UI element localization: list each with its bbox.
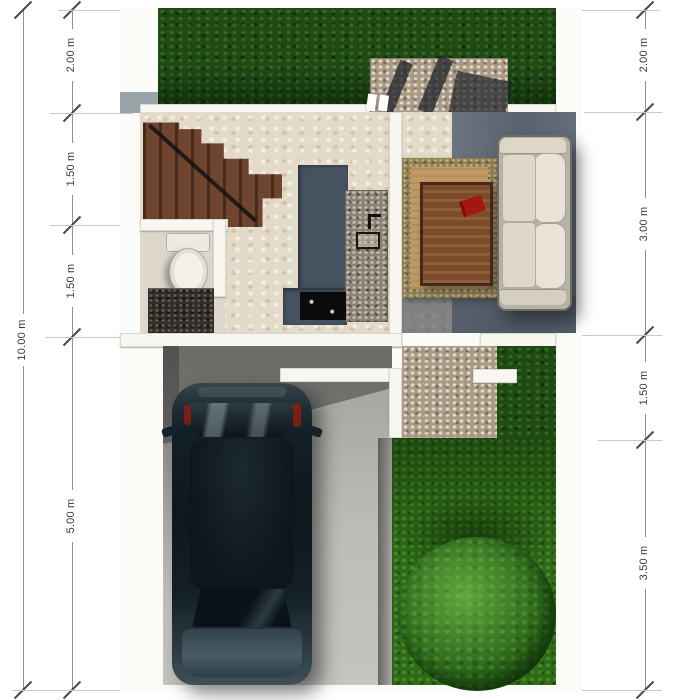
garden-grass-upper (497, 346, 556, 438)
dimension-label-right-1: 3.00 m (637, 198, 653, 250)
sofa-seat-cushion (502, 222, 536, 288)
garden-gravel-path (402, 346, 497, 438)
car-trunk (182, 629, 302, 677)
dimension-label-left-overall: 10.00 m (15, 314, 31, 366)
sofa-back-cushion (533, 153, 566, 223)
wall-inner-vertical (389, 112, 402, 346)
witness-line (50, 225, 120, 226)
wall-garden-piece (473, 369, 517, 383)
witness-line (50, 113, 133, 114)
witness-line (58, 10, 120, 11)
witness-line (598, 440, 662, 441)
kitchen-faucet-icon (368, 214, 381, 217)
witness-line (584, 112, 662, 113)
wall-carport-vertical (389, 368, 402, 438)
dimension-label-left-2: 1.50 m (64, 255, 80, 307)
wall-bathroom-right (213, 219, 226, 297)
kitchen-sink (356, 232, 380, 249)
kitchen-counter-side (298, 165, 348, 290)
witness-line (12, 690, 120, 691)
sofa-back-cushion (533, 223, 566, 289)
car-roof (190, 439, 294, 589)
cooktop (300, 292, 346, 320)
dimension-label-right-0: 2.00 m (637, 29, 653, 81)
wall-middle-right (480, 333, 556, 347)
dimension-label-right-2: 1.50 m (637, 362, 653, 414)
wall-carport-horizontal (280, 368, 402, 382)
witness-line (582, 335, 662, 336)
dimension-label-left-1: 1.50 m (64, 143, 80, 195)
round-tree (398, 537, 556, 691)
dimension-label-left-3: 5.00 m (64, 490, 80, 542)
car-rear-window (188, 589, 296, 627)
witness-line (46, 337, 120, 338)
dimension-label-left-0: 2.00 m (64, 29, 80, 81)
sofa-armrest (500, 138, 566, 154)
witness-line (582, 10, 660, 11)
car (172, 383, 312, 685)
car-red-accent (184, 405, 191, 425)
dimension-label-right-3: 3.50 m (637, 537, 653, 589)
fence-shadow (378, 438, 394, 685)
witness-line (582, 690, 662, 691)
wall-middle-left (120, 333, 402, 347)
sofa-seat-cushion (502, 154, 536, 222)
car-red-accent (293, 403, 301, 427)
sofa-armrest (500, 289, 566, 305)
kitchen-counter-granite (345, 190, 388, 322)
car-windshield (182, 403, 302, 437)
bathroom-vanity (148, 288, 214, 333)
sofa (497, 135, 572, 311)
floor-plan-canvas: 10.00 m 2.00 m 1.50 m 1.50 m 5.00 m 2.00… (0, 0, 700, 700)
car-roof-rail (198, 387, 286, 397)
